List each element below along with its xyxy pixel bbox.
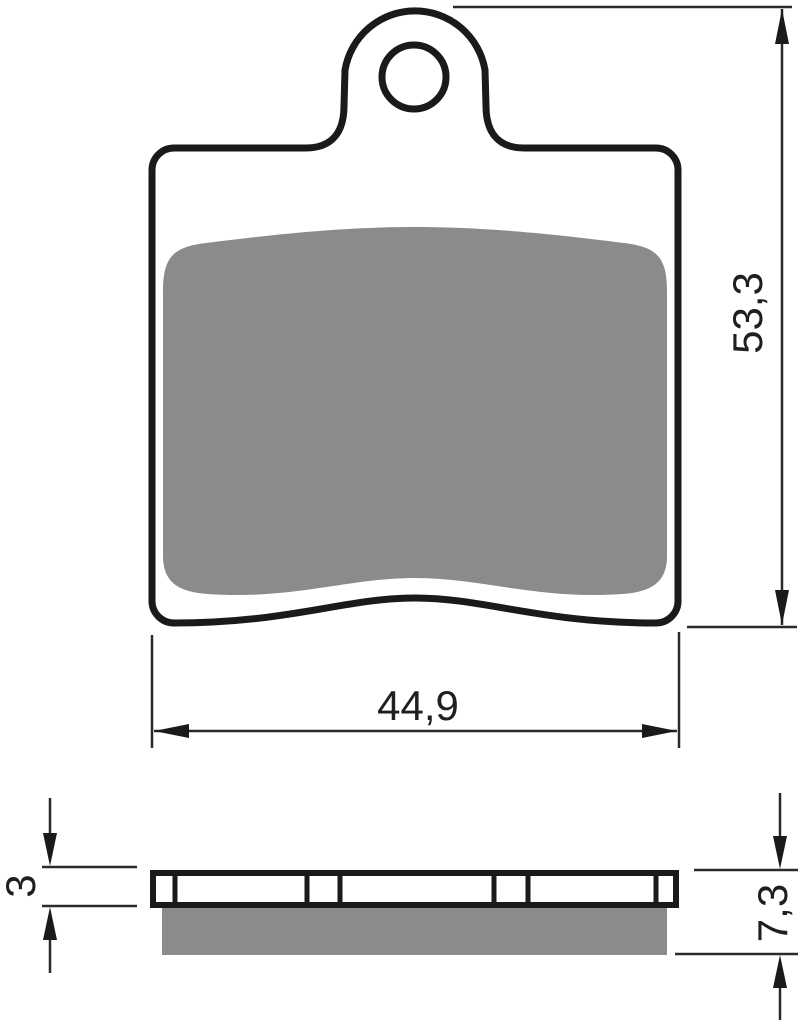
height-arrow-top bbox=[775, 9, 789, 44]
front-view bbox=[152, 11, 678, 623]
height-dimension-label: 53,3 bbox=[724, 272, 771, 354]
plate-thickness-arrow-bottom bbox=[43, 907, 57, 940]
width-dimension: 44,9 bbox=[152, 632, 679, 748]
total-thickness-label: 7,3 bbox=[749, 884, 796, 942]
width-arrow-left bbox=[154, 724, 189, 738]
backing-plate bbox=[153, 873, 676, 905]
total-thickness-dimension: 7,3 bbox=[675, 793, 798, 1020]
friction-material-front bbox=[163, 227, 667, 595]
plate-thickness-arrow-top bbox=[43, 833, 57, 866]
technical-drawing-canvas: 53,3 44,9 bbox=[0, 0, 799, 1024]
total-thickness-arrow-top bbox=[773, 836, 787, 869]
width-arrow-right bbox=[642, 724, 677, 738]
total-thickness-arrow-bottom bbox=[773, 955, 787, 988]
plate-thickness-label: 3 bbox=[0, 874, 44, 897]
width-dimension-label: 44,9 bbox=[377, 682, 459, 729]
mounting-tab-hole bbox=[382, 45, 446, 109]
side-view bbox=[153, 871, 676, 955]
friction-material-side bbox=[162, 908, 667, 955]
brake-pad-drawing: 53,3 44,9 bbox=[0, 0, 799, 1024]
plate-thickness-dimension: 3 bbox=[0, 798, 137, 973]
height-arrow-bottom bbox=[775, 590, 789, 625]
